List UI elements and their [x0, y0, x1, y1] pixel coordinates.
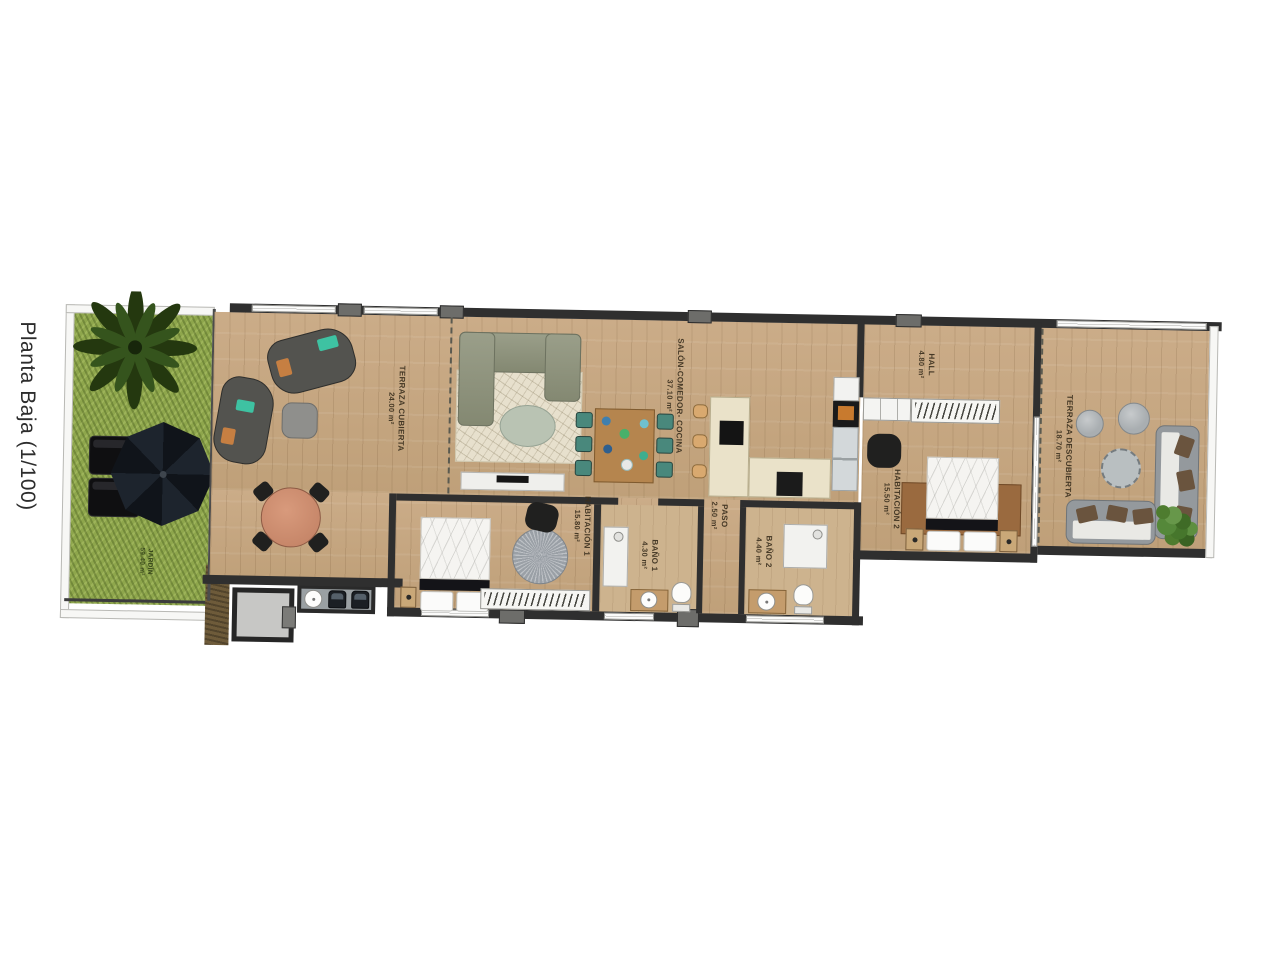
toilet-bano1	[670, 582, 693, 612]
storage-door-tab	[282, 606, 296, 628]
window-bano1	[604, 612, 654, 620]
bbq-grill	[351, 591, 369, 609]
kitchen-island	[708, 396, 750, 497]
nightstand	[999, 530, 1017, 552]
plate	[603, 444, 612, 453]
wall-salon-bano1	[658, 498, 704, 506]
kitchen-sink-unit	[776, 472, 802, 496]
armchair	[867, 433, 902, 468]
outdoor-sofa	[1065, 499, 1156, 545]
garden-wall-bottom	[60, 609, 209, 621]
dining-chair	[656, 461, 673, 477]
side-table	[281, 402, 318, 439]
cooktop	[719, 421, 743, 445]
bed-habitacion2	[925, 457, 999, 552]
toilet-bano2	[792, 584, 815, 614]
shower-bano1	[603, 526, 629, 586]
entry-door-tab	[896, 314, 922, 327]
nightstand	[905, 528, 923, 550]
shower-bano2	[783, 524, 828, 569]
wardrobe-habitacion1	[480, 588, 590, 611]
bar-stool	[692, 434, 707, 448]
floor-plan-canvas: Planta Baja (1/100) JARDÍN59.40 m²	[0, 0, 1280, 960]
dining-chair	[575, 460, 592, 476]
fridge	[831, 427, 858, 491]
dining-chair	[576, 412, 593, 428]
kitchen-counter	[833, 377, 859, 401]
wall-column-tab	[499, 609, 525, 623]
window-north	[364, 307, 438, 315]
plate	[639, 451, 648, 460]
palm-tree	[68, 290, 202, 415]
oven-window	[838, 406, 854, 420]
outdoor-sofa	[1154, 425, 1200, 540]
bbq-grill	[328, 590, 346, 608]
wing-wall-east	[852, 502, 861, 625]
hall-closet	[863, 397, 911, 421]
window-bano2	[746, 615, 824, 623]
bar-stool	[692, 464, 707, 478]
tv	[497, 475, 529, 483]
dining-chair	[575, 436, 592, 452]
nightstand	[400, 587, 416, 608]
wall-column-tab	[688, 310, 712, 323]
plate	[602, 416, 611, 425]
wall-column-tab	[338, 303, 362, 316]
floor-plan: JARDÍN59.40 m²	[55, 298, 1222, 680]
sofa-chaise	[544, 333, 581, 402]
bar-stool	[693, 404, 708, 418]
wardrobe-habitacion2	[911, 398, 1000, 424]
sofa-chaise	[458, 332, 496, 427]
